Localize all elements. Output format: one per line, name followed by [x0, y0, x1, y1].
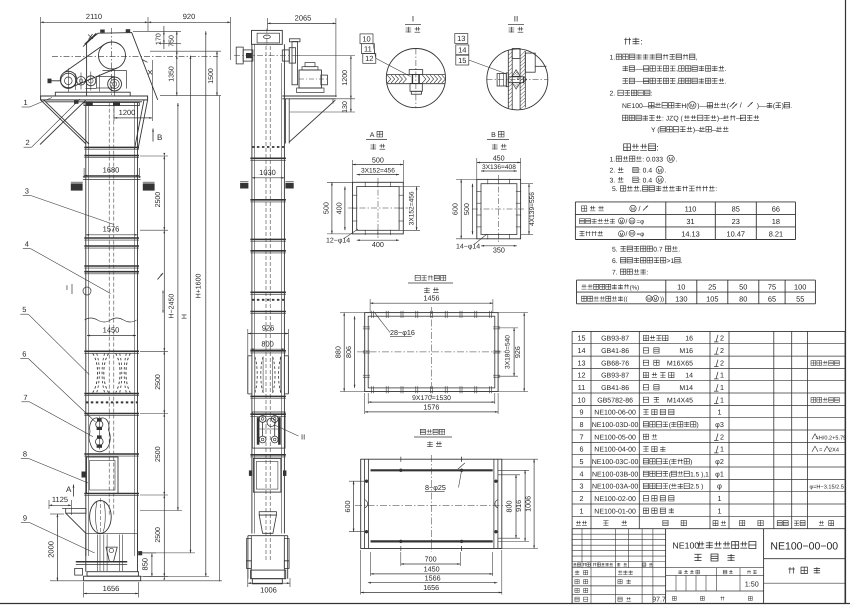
- svg-text:φ2: φ2: [715, 457, 724, 466]
- svg-text::: :: [656, 143, 658, 153]
- svg-text:=φ: =φ: [637, 231, 645, 238]
- svg-text:GB68-76: GB68-76: [601, 360, 629, 367]
- svg-text:M: M: [630, 231, 634, 236]
- svg-text:,: ,: [696, 55, 698, 62]
- svg-text:——: ——: [635, 79, 649, 86]
- svg-text:1200: 1200: [342, 70, 349, 86]
- svg-text:1:50: 1:50: [745, 580, 759, 589]
- svg-text:(%): (%): [630, 284, 640, 291]
- svg-text::: :: [651, 91, 653, 98]
- svg-text:I: I: [66, 285, 68, 292]
- svg-text:.: .: [676, 157, 678, 164]
- svg-text:II: II: [301, 433, 305, 442]
- svg-text:M: M: [657, 178, 662, 184]
- svg-text:66: 66: [772, 205, 780, 214]
- svg-text:φ: φ: [717, 482, 722, 491]
- svg-text:170: 170: [156, 33, 163, 45]
- svg-text:3.: 3.: [610, 177, 616, 184]
- svg-text:4X139=556: 4X139=556: [529, 192, 536, 226]
- svg-text::: :: [640, 37, 642, 47]
- svg-text:1350: 1350: [168, 66, 175, 82]
- svg-text:5.: 5.: [612, 186, 618, 193]
- svg-text:NE100-03A-00: NE100-03A-00: [592, 484, 638, 491]
- svg-text:/: /: [740, 102, 742, 110]
- svg-text:3X152=456: 3X152=456: [408, 191, 415, 225]
- svg-text:14: 14: [578, 346, 586, 355]
- svg-text:.: .: [665, 168, 667, 175]
- svg-text:.: .: [790, 103, 792, 110]
- svg-text:16: 16: [685, 336, 693, 343]
- svg-text:GB41-86: GB41-86: [601, 348, 629, 355]
- svg-text:2: 2: [720, 334, 724, 343]
- svg-text:18: 18: [772, 217, 780, 226]
- svg-text:65: 65: [768, 295, 776, 304]
- svg-text:1.: 1.: [610, 157, 616, 164]
- svg-text:5: 5: [22, 305, 26, 314]
- svg-text:8: 8: [580, 420, 584, 429]
- svg-text:1: 1: [720, 445, 724, 454]
- svg-text:28−φ16: 28−φ16: [390, 328, 415, 337]
- svg-text:9X170=1530: 9X170=1530: [412, 395, 451, 402]
- svg-text:97.7: 97.7: [652, 597, 666, 604]
- svg-text:I: I: [412, 15, 414, 24]
- svg-text:NE100-01-00: NE100-01-00: [594, 508, 636, 515]
- svg-text:,: ,: [640, 186, 642, 193]
- svg-text:M: M: [657, 168, 662, 174]
- svg-text:500: 500: [372, 156, 384, 165]
- svg-text:2065: 2065: [295, 13, 312, 22]
- svg-text:=φ: =φ: [637, 219, 645, 226]
- svg-text:3X180=540: 3X180=540: [504, 335, 511, 369]
- svg-text:800: 800: [505, 501, 514, 513]
- svg-text:5.: 5.: [612, 247, 618, 254]
- svg-text:400: 400: [334, 202, 343, 214]
- svg-text:M16X65: M16X65: [667, 360, 693, 367]
- svg-text:H+1600: H+1600: [195, 274, 202, 299]
- svg-text:6.: 6.: [612, 258, 618, 265]
- svg-text:1125: 1125: [52, 495, 68, 504]
- svg-text:: 0.4: : 0.4: [639, 177, 652, 184]
- svg-text:85: 85: [732, 205, 740, 214]
- svg-text:1656: 1656: [103, 584, 120, 593]
- svg-text:100: 100: [794, 283, 806, 292]
- svg-text:916: 916: [514, 500, 523, 512]
- svg-text:.: .: [665, 177, 667, 184]
- svg-text:2X4: 2X4: [829, 448, 839, 454]
- svg-text:,: ,: [676, 79, 678, 86]
- svg-text:6: 6: [580, 445, 584, 454]
- svg-text:1006: 1006: [524, 496, 533, 512]
- svg-text:2500: 2500: [155, 446, 162, 462]
- svg-text:φ3: φ3: [715, 420, 724, 429]
- svg-text:GB93-87: GB93-87: [601, 336, 629, 343]
- svg-text:50: 50: [739, 283, 747, 292]
- svg-text:GB5782-86: GB5782-86: [597, 397, 633, 404]
- svg-text:10: 10: [362, 35, 370, 44]
- svg-text:)——: )——: [697, 103, 713, 110]
- svg-text:5: 5: [580, 457, 584, 466]
- svg-text::: :: [647, 270, 649, 277]
- svg-text:1: 1: [720, 383, 724, 392]
- svg-text:1566: 1566: [425, 573, 441, 582]
- svg-text:880: 880: [334, 346, 343, 358]
- svg-text:2.5 ): 2.5 ): [690, 484, 703, 491]
- svg-text:110: 110: [685, 205, 697, 214]
- svg-text:M: M: [690, 104, 695, 110]
- svg-text:8−φ25: 8−φ25: [425, 483, 446, 492]
- svg-text:2500: 2500: [155, 374, 162, 390]
- svg-text:3X152=456: 3X152=456: [361, 168, 395, 175]
- svg-text:500: 500: [462, 203, 471, 215]
- svg-text:4: 4: [580, 469, 584, 478]
- svg-text:1: 1: [718, 506, 722, 515]
- svg-text:=H/0.2+5.75: =H/0.2+5.75: [816, 434, 847, 441]
- svg-text:14−φ14: 14−φ14: [456, 244, 480, 251]
- svg-text:8: 8: [23, 450, 27, 459]
- svg-text:.: .: [725, 79, 727, 86]
- svg-text:1450: 1450: [424, 565, 440, 574]
- svg-text:12: 12: [365, 54, 373, 63]
- svg-text:1030: 1030: [259, 168, 276, 177]
- svg-text:GB41-86: GB41-86: [601, 385, 629, 392]
- svg-text:2500: 2500: [155, 527, 162, 543]
- svg-text:500: 500: [321, 202, 330, 214]
- svg-text:1.5 ),1: 1.5 ),1: [690, 471, 709, 478]
- svg-text:2110: 2110: [86, 12, 102, 21]
- svg-text:800: 800: [261, 339, 274, 348]
- svg-text:3: 3: [580, 482, 584, 491]
- svg-text:M: M: [668, 157, 673, 163]
- svg-text:2: 2: [720, 358, 724, 367]
- svg-text:M: M: [647, 297, 651, 302]
- svg-text:11: 11: [364, 44, 372, 53]
- svg-text:II: II: [514, 15, 518, 24]
- svg-text:NE100-04-00: NE100-04-00: [594, 447, 636, 454]
- svg-text:105: 105: [706, 295, 718, 304]
- svg-text:2: 2: [580, 494, 584, 503]
- svg-text:φ1: φ1: [715, 469, 724, 478]
- svg-text:450: 450: [493, 154, 505, 163]
- svg-text:12−φ14: 12−φ14: [326, 238, 350, 245]
- svg-text:GB93-87: GB93-87: [601, 373, 629, 380]
- svg-text:M: M: [631, 207, 635, 213]
- svg-text:1: 1: [24, 98, 28, 107]
- svg-text:B: B: [157, 133, 162, 142]
- svg-text:2.: 2.: [610, 91, 616, 98]
- svg-text:: JZQ (: : JZQ (: [662, 116, 684, 123]
- svg-text:): ): [782, 103, 784, 110]
- svg-text:9: 9: [580, 408, 584, 417]
- svg-text:13: 13: [578, 358, 586, 367]
- svg-text:1450: 1450: [103, 326, 120, 335]
- svg-text:M14X45: M14X45: [667, 397, 693, 404]
- svg-text:13: 13: [457, 34, 465, 43]
- svg-text:M16: M16: [679, 348, 693, 355]
- svg-text:M14: M14: [679, 385, 693, 392]
- svg-text:M: M: [654, 297, 658, 302]
- svg-text:700: 700: [425, 555, 437, 564]
- svg-text:,: ,: [676, 66, 678, 73]
- svg-text:NE100-03B-00: NE100-03B-00: [592, 471, 638, 478]
- svg-text:1: 1: [720, 371, 724, 380]
- svg-text:): ): [690, 459, 692, 466]
- svg-text:750: 750: [168, 35, 175, 47]
- svg-text:)): )): [660, 296, 664, 303]
- svg-text:——: ——: [635, 66, 649, 73]
- svg-text:1006: 1006: [260, 586, 277, 595]
- svg-text:): ): [697, 422, 699, 429]
- svg-text:600: 600: [451, 203, 460, 215]
- svg-text:Y (: Y (: [651, 127, 660, 134]
- svg-text:7.: 7.: [612, 270, 618, 277]
- svg-text:23: 23: [732, 217, 740, 226]
- svg-text:1680: 1680: [103, 166, 120, 175]
- svg-text:/: /: [639, 205, 641, 213]
- svg-text:8.21: 8.21: [769, 229, 783, 238]
- svg-text:/: /: [626, 219, 628, 226]
- svg-text:NE100−00−00: NE100−00−00: [770, 541, 838, 553]
- svg-text:14: 14: [685, 373, 693, 380]
- svg-text:M: M: [620, 232, 624, 237]
- svg-text:0.7: 0.7: [653, 247, 663, 254]
- svg-text:)——: )——: [757, 103, 773, 110]
- svg-text:2: 2: [26, 138, 30, 147]
- svg-text:1500: 1500: [208, 68, 215, 84]
- svg-text:400: 400: [372, 240, 384, 249]
- svg-text:350: 350: [493, 246, 505, 255]
- svg-text:/: /: [626, 231, 628, 238]
- svg-text::: :: [715, 186, 717, 193]
- svg-text:φ=H−3.15/2.5: φ=H−3.15/2.5: [810, 484, 844, 491]
- svg-text:.: .: [678, 247, 680, 254]
- svg-text:926: 926: [513, 346, 522, 358]
- svg-text:12: 12: [578, 371, 586, 380]
- svg-text:80: 80: [739, 295, 747, 304]
- svg-text:920: 920: [183, 12, 196, 21]
- svg-text:10.47: 10.47: [727, 229, 746, 238]
- svg-text:130: 130: [342, 101, 349, 113]
- svg-text:NE100-05-00: NE100-05-00: [594, 434, 636, 441]
- svg-text:1: 1: [580, 506, 584, 515]
- svg-text:3X136=408: 3X136=408: [482, 164, 516, 171]
- svg-text:2500: 2500: [155, 192, 162, 208]
- svg-text:NE100-02-00: NE100-02-00: [594, 496, 636, 503]
- svg-text:NE100-06-00: NE100-06-00: [594, 410, 636, 417]
- svg-text:: 0.033: : 0.033: [642, 157, 663, 164]
- svg-text:1: 1: [720, 395, 724, 404]
- svg-text:1576: 1576: [423, 403, 439, 412]
- svg-text:2: 2: [720, 432, 724, 441]
- svg-text:806: 806: [344, 346, 353, 358]
- svg-text:15: 15: [578, 334, 586, 343]
- svg-text:H(: H(: [681, 103, 689, 110]
- svg-text:2: 2: [720, 346, 724, 355]
- svg-text:B: B: [491, 132, 496, 139]
- svg-text:6: 6: [22, 350, 26, 359]
- svg-text:25: 25: [708, 283, 716, 292]
- svg-text:M: M: [630, 219, 634, 224]
- svg-text:1.: 1.: [610, 55, 616, 62]
- svg-text:10: 10: [578, 395, 586, 404]
- svg-text:130: 130: [675, 295, 687, 304]
- svg-text:75: 75: [768, 283, 776, 292]
- svg-text:55: 55: [796, 295, 804, 304]
- svg-text:H: H: [182, 314, 189, 319]
- svg-text:2.: 2.: [610, 168, 616, 175]
- svg-text:NE100: NE100: [672, 541, 699, 551]
- svg-text:NE100-03D-00: NE100-03D-00: [592, 422, 639, 429]
- svg-text:1656: 1656: [423, 583, 439, 592]
- svg-text:926: 926: [262, 324, 275, 333]
- svg-text:A: A: [66, 485, 72, 494]
- svg-text:A: A: [370, 132, 375, 139]
- svg-text:.: .: [681, 258, 683, 265]
- svg-text:: 0.4: : 0.4: [639, 168, 652, 175]
- svg-text:31: 31: [686, 217, 694, 226]
- svg-text:1200: 1200: [119, 108, 136, 117]
- svg-text:NE100-03C-00: NE100-03C-00: [592, 459, 639, 466]
- svg-text:H−2450: H−2450: [168, 294, 175, 319]
- svg-text:14.13: 14.13: [681, 229, 700, 238]
- svg-text:M: M: [620, 219, 624, 224]
- svg-text:10: 10: [677, 283, 685, 292]
- svg-text:4: 4: [25, 240, 29, 249]
- svg-text:850: 850: [141, 558, 150, 571]
- svg-text:15: 15: [458, 56, 466, 65]
- svg-text:600: 600: [343, 501, 352, 513]
- svg-text:11: 11: [578, 383, 585, 392]
- svg-text:.: .: [725, 66, 727, 73]
- svg-text:1: 1: [718, 494, 722, 503]
- svg-text:7: 7: [23, 393, 27, 402]
- svg-text:7: 7: [580, 432, 584, 441]
- svg-text:—: —: [736, 116, 743, 123]
- svg-text:1576: 1576: [103, 225, 120, 234]
- svg-text:9: 9: [23, 513, 27, 522]
- svg-text:1456: 1456: [424, 294, 440, 303]
- svg-text:>1: >1: [667, 258, 675, 265]
- svg-text:14: 14: [458, 46, 466, 55]
- svg-text:1: 1: [718, 408, 722, 417]
- svg-text:3: 3: [25, 187, 29, 196]
- svg-text:2000: 2000: [47, 541, 56, 558]
